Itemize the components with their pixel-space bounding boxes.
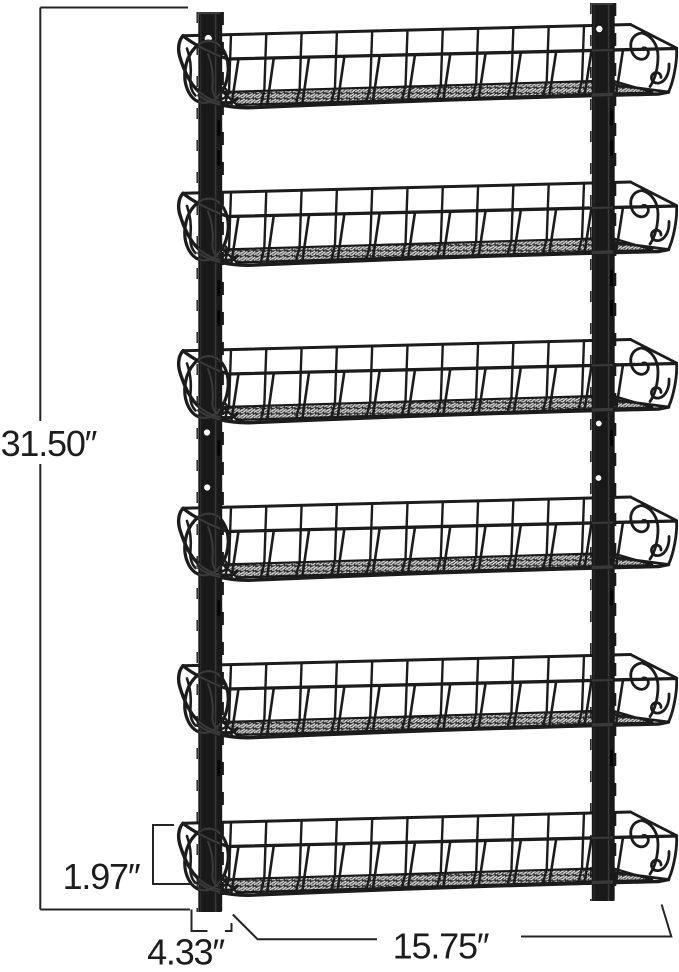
svg-text:4.33″: 4.33″ [147, 932, 225, 972]
svg-text:1.97″: 1.97″ [63, 856, 141, 897]
svg-text:15.75″: 15.75″ [393, 926, 490, 967]
svg-text:31.50″: 31.50″ [1, 423, 98, 464]
